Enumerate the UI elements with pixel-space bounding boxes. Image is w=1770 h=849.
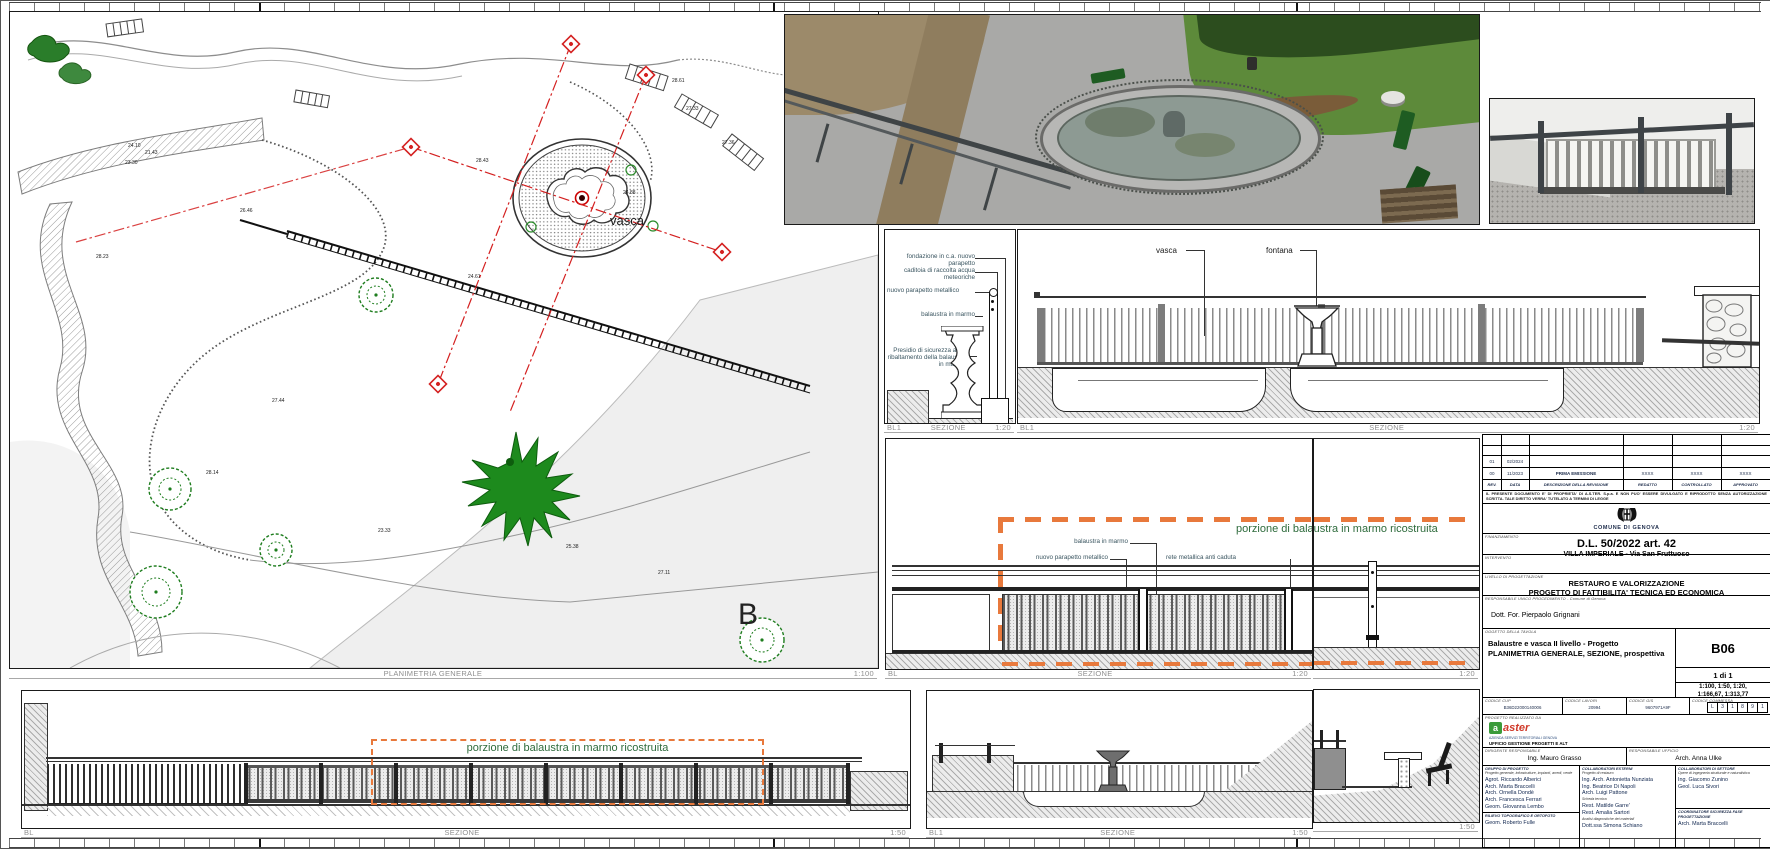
cont-section-viewport: porzione di balaustra in marmo ricostrui… [1313, 438, 1480, 670]
genova-crest-icon [1616, 506, 1638, 524]
rail-post [1726, 113, 1732, 195]
cont-section-caption: 1:20 [1313, 668, 1478, 679]
disclaimer: IL PRESENTE DOCUMENTO E' DI PROPRIETA' D… [1483, 490, 1770, 503]
bottom-section-viewport [926, 690, 1313, 829]
baluster-panel [1002, 594, 1140, 652]
detail-section-viewport: fondazione in c.a. nuovo parapetto cadit… [884, 229, 1016, 424]
vasca-basin [513, 139, 658, 257]
long-section-viewport: vasca fontana [1017, 229, 1760, 424]
stone-pillar [1702, 294, 1752, 368]
site-plan-drawing: 28.43 24.88 28.23 27.44 24.10 23.30 26.4… [10, 12, 878, 668]
bench-section-caption: 1:50 [1313, 821, 1478, 832]
vasca-label: vasca [610, 213, 645, 228]
post [1284, 589, 1293, 651]
elevation-caption: BLSEZIONE1:50 [21, 827, 909, 838]
annotation: nuovo parapetto metallico [996, 555, 1108, 562]
wall [1314, 748, 1346, 790]
annotation: caditoia di raccolta acqua meteoriche [887, 268, 975, 282]
aster-logo-icon: a [1489, 722, 1502, 734]
design-level: LIVELLO DI PROGETTAZIONE RESTAURO E VALO… [1483, 573, 1770, 595]
fontana-label: fontana [1266, 246, 1293, 255]
metal-fence [1037, 308, 1643, 365]
section-letter-b: B [738, 598, 758, 631]
revision-table: 01 02/2024 00 11/2023 PRIMA EMISSIONE XX… [1483, 435, 1770, 490]
intervento: INTERVENTO [1483, 554, 1770, 573]
rup: RESPONSABILE UNICO PROCEDIMENTO - Comune… [1483, 595, 1770, 628]
fountain-tazza [1294, 302, 1340, 368]
elevation-viewport: porzione di balaustra in marmo ricostrui… [21, 690, 911, 829]
svg-text:27.36: 27.36 [722, 140, 735, 146]
post [1138, 589, 1148, 651]
masonry [887, 390, 929, 424]
fountain-fence [1035, 79, 1324, 195]
render-balustrade-3d [1489, 98, 1755, 224]
managers: DIRIGENTE RESPONSABILE Ing. Mauro Grasso… [1483, 747, 1770, 765]
project-team: GRUPPO DI PROGETTO Progetto generale, in… [1483, 765, 1770, 847]
baluster-panel [1144, 594, 1286, 652]
financing: FINANZIAMENTO D.L. 50/2022 art. 42 VILLA… [1483, 533, 1770, 554]
reconstruction-note-elevation: porzione di balaustra in marmo ricostrui… [371, 742, 764, 754]
stairs [1380, 184, 1458, 223]
municipality-block: COMUNE DI GENOVA [1483, 503, 1770, 533]
mid-section-caption: BLSEZIONE1:20 [885, 668, 1311, 679]
svg-text:28.61: 28.61 [672, 78, 685, 84]
svg-text:27.44: 27.44 [272, 398, 285, 404]
reconstruction-note: porzione di balaustra in marmo ricostrui… [1236, 523, 1312, 535]
codes: CODICE CUP B36D22000140006 CODICE LAVORI… [1483, 697, 1770, 714]
made-by: PROGETTO REALIZZATO DA a aster AZIENDA S… [1483, 714, 1770, 747]
ground [1314, 647, 1479, 670]
detail-caption: BL1SEZIONE1:20 [884, 422, 1014, 433]
bench [1090, 68, 1125, 84]
svg-text:27.33: 27.33 [686, 106, 699, 112]
bottom-section-caption: BL1SEZIONE1:50 [926, 827, 1311, 838]
commessa-boxes: L31891 [1708, 702, 1768, 713]
reconstruction-note-cont: porzione di balaustra in marmo ricostrui… [1314, 523, 1438, 535]
annotation: rete metallica anti caduta [1166, 555, 1288, 562]
end-wall [24, 703, 48, 811]
annotation: balaustra in marmo [1016, 539, 1128, 546]
reconstruction-marker [1314, 517, 1472, 522]
svg-text:27.11: 27.11 [658, 570, 670, 576]
render-garden-3d [784, 14, 1480, 225]
svg-text:25.38: 25.38 [566, 544, 579, 550]
aster-logo: a aster [1489, 722, 1529, 734]
svg-text:28.14: 28.14 [206, 470, 219, 476]
post [1368, 561, 1377, 661]
svg-text:28.43: 28.43 [476, 158, 489, 164]
drawing-sheet: 28.43 24.88 28.23 27.44 24.10 23.30 26.4… [0, 0, 1770, 849]
wall-panel [892, 594, 990, 652]
svg-text:24.61: 24.61 [468, 274, 481, 280]
waste-bin [1247, 57, 1257, 70]
basin-void [1052, 368, 1266, 412]
svg-text:24.88: 24.88 [623, 190, 636, 196]
annotation: fondazione in c.a. nuovo parapetto [887, 254, 975, 268]
table-base [1398, 758, 1410, 788]
svg-text:24.10: 24.10 [128, 143, 141, 149]
svg-text:23.33: 23.33 [378, 528, 391, 534]
metal-fence-panel [47, 764, 244, 806]
vasca-label: vasca [1156, 246, 1177, 255]
plan-viewport: 28.43 24.88 28.23 27.44 24.10 23.30 26.4… [9, 11, 879, 669]
sheet-count: 1 di 1 [1676, 668, 1770, 683]
svg-text:21.43: 21.43 [145, 150, 158, 156]
balusters [1548, 141, 1714, 189]
annotation: nuovo parapetto metallico [887, 288, 959, 295]
basin-void [1023, 791, 1205, 807]
long-section-caption: BL1SEZIONE1:20 [1017, 422, 1758, 433]
rail-post [1638, 117, 1644, 193]
svg-text:26.46: 26.46 [240, 208, 253, 214]
fountain-tazza [1095, 747, 1131, 793]
subject: OGGETTO DELLA TAVOLA Balaustre e vasca I… [1483, 628, 1770, 697]
bench-section-viewport [1313, 689, 1480, 823]
plan-caption: PLANIMETRIA GENERALE1:100 [9, 667, 877, 679]
basin-void [1290, 368, 1564, 412]
annotation: balaustra in marmo [887, 312, 975, 319]
rail-post [1538, 121, 1544, 193]
mid-section-viewport: porzione di balaustra in marmo ricostrui… [885, 438, 1313, 670]
shrubs [28, 35, 91, 83]
svg-text:23.30: 23.30 [125, 160, 138, 166]
sheet-code: B06 [1676, 629, 1770, 668]
svg-text:28.23: 28.23 [96, 254, 109, 260]
foundation-block [981, 398, 1009, 424]
title-block: 01 02/2024 00 11/2023 PRIMA EMISSIONE XX… [1482, 434, 1770, 848]
round-table [1381, 91, 1405, 104]
